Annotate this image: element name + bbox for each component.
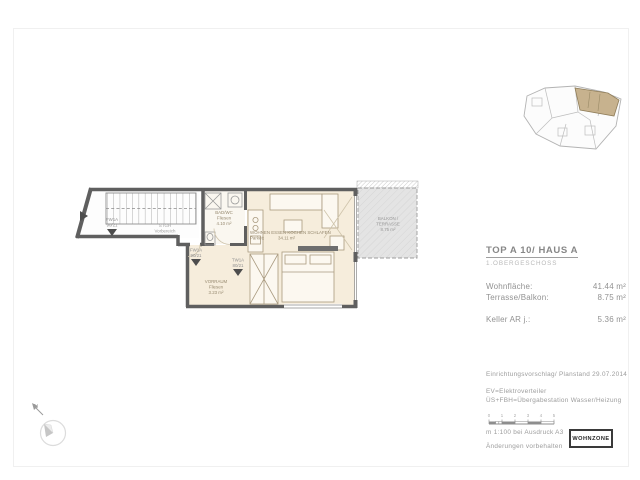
- scale-tick: 3: [527, 413, 530, 418]
- disclaimer-note: Änderungen vorbehalten: [486, 443, 636, 450]
- plan-sheet: FW1A 90/21 FW1A 90/21 TW1A 80/21 STGH Vo…: [0, 0, 640, 480]
- logo-label: WOHNZONE: [572, 436, 609, 442]
- area-table: Wohnfläche: 41.44 m² Terrasse/Balkon: 8.…: [486, 282, 626, 326]
- legend-uefbh: ÜS+FBH=Übergabestation Wasser/Heizung: [486, 397, 636, 406]
- hall-area-label: 3.23 m²: [209, 290, 224, 295]
- living-floor-label: Parkett: [250, 236, 265, 241]
- scale-bar: 0 1 2 3 4 5: [488, 413, 556, 424]
- area-value: 5.36 m²: [597, 315, 626, 326]
- scale-tick: 5: [553, 413, 556, 418]
- bath-floor-label: Fliesen: [217, 216, 232, 221]
- stove-burner: [253, 217, 258, 222]
- staircase: [106, 193, 196, 224]
- living-label: WOHNEN ESSEN KOCHEN SCHLAFEN: [250, 230, 331, 235]
- area-label: Wohnfläche:: [486, 282, 533, 293]
- window-gap: [284, 304, 342, 309]
- area-label: Keller AR j.:: [486, 315, 530, 326]
- door-label-size: 90/21: [191, 253, 203, 258]
- table-row: Wohnfläche: 41.44 m²: [486, 282, 626, 293]
- legend-block: EV=Elektroverteiler ÜS+FBH=Übergabestati…: [486, 388, 636, 405]
- door-label-size: 80/21: [233, 263, 245, 268]
- terrace-area-label: 8.75 m²: [381, 227, 396, 232]
- table-row: Keller AR j.: 5.36 m²: [486, 315, 626, 326]
- scale-note: m 1:100 bei Ausdruck A3: [486, 429, 636, 436]
- living-area-label: 34.11 m²: [278, 236, 296, 241]
- pillow: [310, 255, 331, 264]
- legend-ev: EV=Elektroverteiler: [486, 388, 636, 397]
- terrace-label: BALKON /: [378, 216, 399, 221]
- title-block: TOP A 10/ HAUS A 1.OBERGESCHOSS Wohnfläc…: [486, 240, 626, 326]
- stairs-sublabel: Vorbereich: [155, 229, 177, 234]
- apartment-plan: FW1A 90/21 FW1A 90/21 TW1A 80/21 STGH Vo…: [76, 181, 418, 309]
- area-label: Terrasse/Balkon:: [486, 293, 549, 304]
- scale-tick: 0: [488, 413, 491, 418]
- key-plan: [524, 86, 621, 149]
- wohnzone-logo: WOHNZONE: [569, 429, 613, 448]
- bed-divider-wall: [298, 246, 338, 251]
- hall-label: VORRAUM: [205, 279, 228, 284]
- table-row: Terrasse/Balkon: 8.75 m²: [486, 293, 626, 304]
- scale-tick: 2: [514, 413, 517, 418]
- hall-floor-label: Fliesen: [209, 285, 224, 290]
- compass-icon: N: [32, 403, 66, 446]
- door-label-code: TW1A: [232, 258, 244, 263]
- floor-subtitle: 1.OBERGESCHOSS: [486, 260, 626, 267]
- scale-tick: 1: [501, 413, 504, 418]
- bath-area-label: 4.10 m²: [217, 221, 232, 226]
- terrace-sublabel: TERRASSE: [376, 222, 400, 227]
- sofa: [270, 194, 322, 210]
- area-value: 8.75 m²: [597, 293, 626, 304]
- door-label-code: FW1A: [106, 217, 118, 222]
- door-label-code: FW1A: [190, 248, 202, 253]
- pillow: [285, 255, 306, 264]
- roof-edge-hatch: [357, 181, 418, 188]
- stairs-label: STGH: [159, 223, 171, 228]
- scale-tick: 4: [540, 413, 543, 418]
- area-value: 41.44 m²: [593, 282, 626, 293]
- door-label-size: 90/21: [107, 223, 119, 228]
- bath-label: BAD/WC: [215, 210, 233, 215]
- apartment-title: TOP A 10/ HAUS A: [486, 245, 578, 258]
- plan-status-note: Einrichtungsvorschlag/ Planstand 29.07.2…: [486, 371, 636, 378]
- windows: [355, 196, 357, 300]
